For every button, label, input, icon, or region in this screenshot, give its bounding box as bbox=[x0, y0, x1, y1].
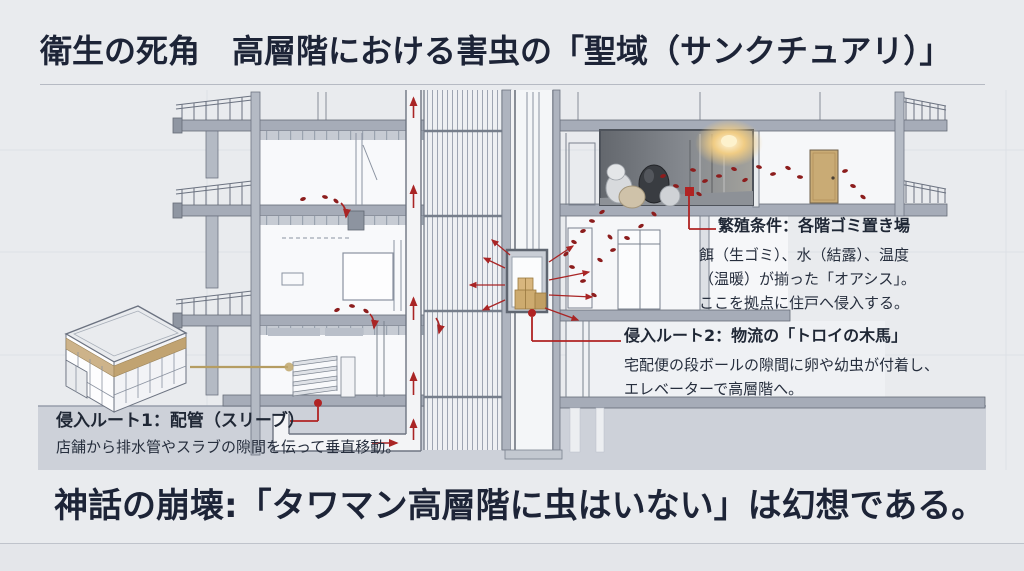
annotation-route1: 侵入ルート1：配管（スリーブ） 店舗から排水管やスラブの隙間を伝って垂直移動。 bbox=[56, 406, 456, 459]
apartment-door-icon bbox=[810, 150, 838, 203]
footer-underlay bbox=[0, 544, 1024, 571]
annotation-route2: 侵入ルート2：物流の「トロイの木馬」 宅配便の段ボールの隙間に卵や幼虫が付着し、… bbox=[624, 322, 984, 401]
annotation-breeding: 繁殖条件：各階ゴミ置き場 餌（生ゴミ）、水（結露）、温度 （温暖）が揃った「オア… bbox=[699, 212, 999, 315]
insect-icon bbox=[716, 174, 722, 178]
annotation-route1-body: 店舗から排水管やスラブの隙間を伝って垂直移動。 bbox=[56, 435, 456, 459]
elevator-cab bbox=[507, 250, 547, 312]
annotation-route1-title: 侵入ルート1：配管（スリーブ） bbox=[56, 406, 456, 431]
lamp-icon bbox=[721, 135, 737, 147]
infographic-page: 衛生の死角 高層階における害虫の「聖域（サンクチュアリ）」 繁殖条件：各階ゴミ置… bbox=[0, 0, 1024, 571]
store-building-icon bbox=[66, 306, 186, 412]
annotation-route2-body: 宅配便の段ボールの隙間に卵や幼虫が付着し、 エレベーターで高層階へ。 bbox=[624, 353, 984, 401]
page-title: 衛生の死角 高層階における害虫の「聖域（サンクチュアリ）」 bbox=[40, 26, 1000, 72]
footer-headline: 神話の崩壊:「タワマン高層階に虫はいない」は幻想である。 bbox=[54, 478, 1014, 527]
annotation-breeding-title: 繁殖条件：各階ゴミ置き場 bbox=[718, 212, 999, 236]
annotation-route2-title: 侵入ルート2：物流の「トロイの木馬」 bbox=[624, 322, 984, 346]
annotation-breeding-body: 餌（生ゴミ）、水（結露）、温度 （温暖）が揃った「オアシス」。 ここを拠点に住戸… bbox=[699, 243, 999, 315]
title-divider bbox=[40, 84, 985, 85]
garbage-room bbox=[600, 119, 763, 208]
